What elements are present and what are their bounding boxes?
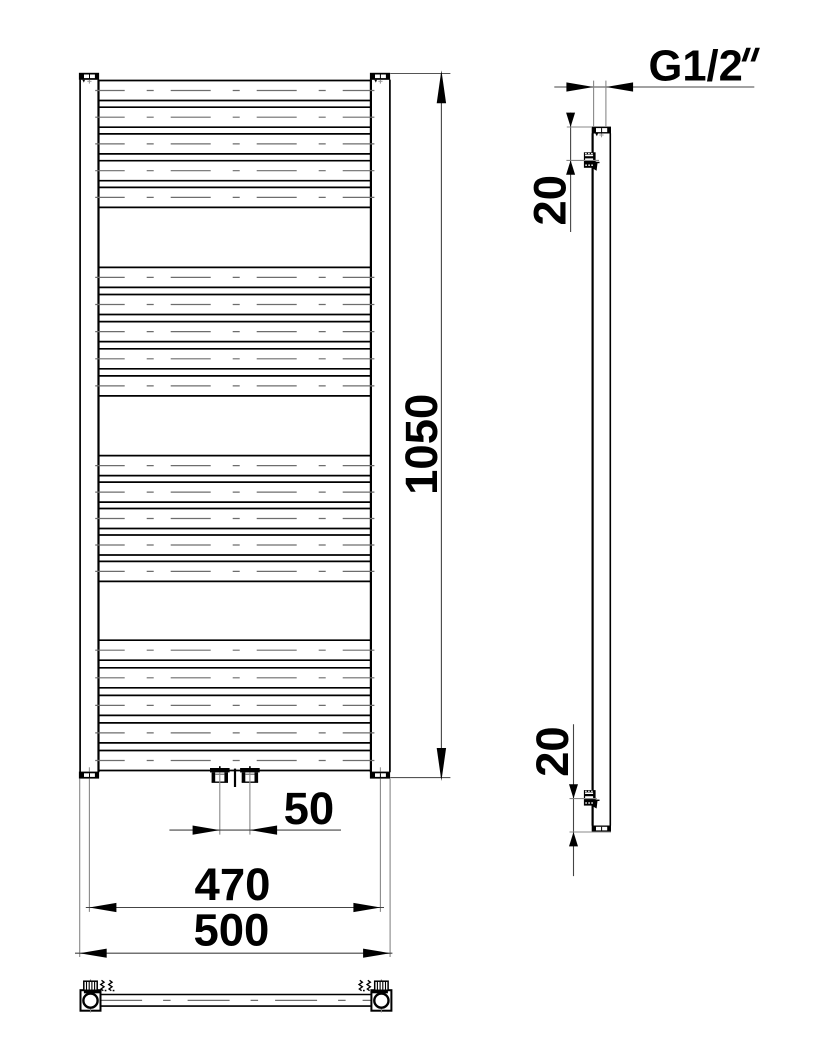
svg-text:G1/2: G1/2 <box>649 43 743 91</box>
svg-text:1050: 1050 <box>396 394 447 495</box>
svg-text:50: 50 <box>284 783 335 834</box>
svg-text:470: 470 <box>195 859 271 910</box>
svg-text:500: 500 <box>193 905 269 956</box>
svg-text:20: 20 <box>527 726 578 777</box>
svg-text:20: 20 <box>525 175 576 226</box>
